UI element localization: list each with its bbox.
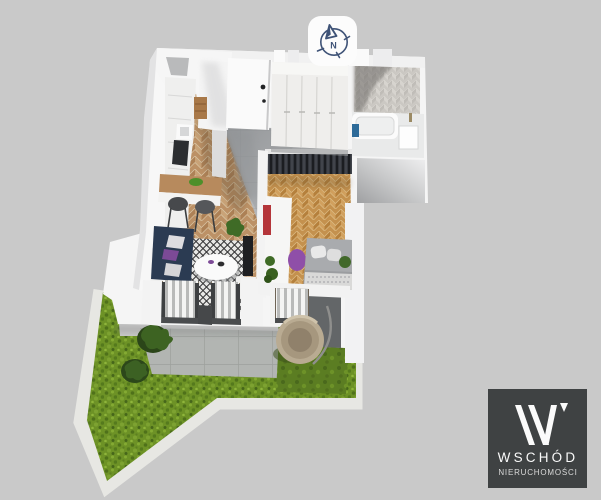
svg-text:N: N — [330, 41, 337, 51]
svg-text:NIERUCHOMOŚCI: NIERUCHOMOŚCI — [498, 468, 577, 477]
svg-text:WSCHÓD: WSCHÓD — [498, 450, 579, 465]
